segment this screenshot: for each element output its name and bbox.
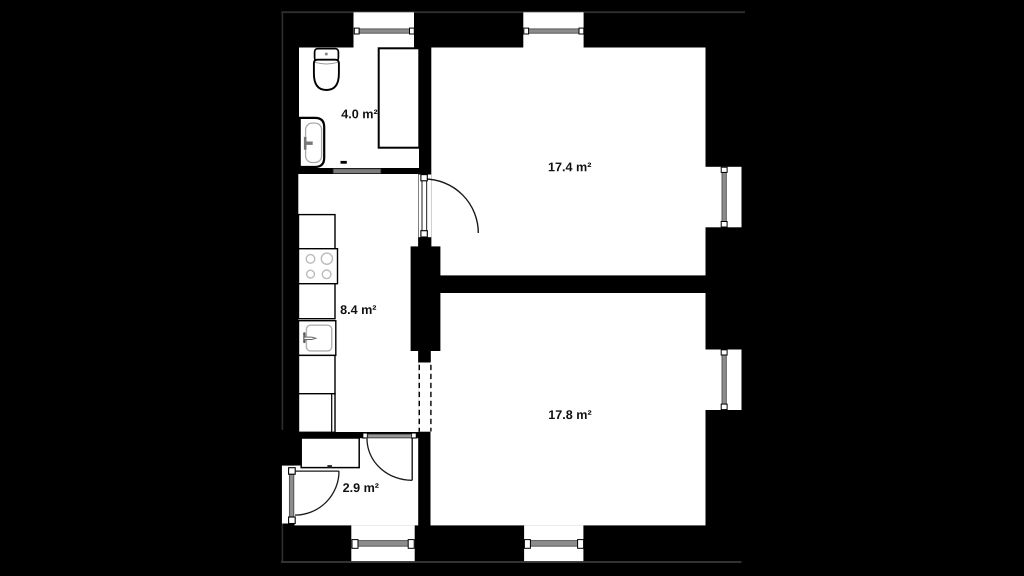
svg-text:4.0 m²: 4.0 m²: [341, 107, 377, 121]
svg-text:8.4 m²: 8.4 m²: [340, 303, 376, 317]
svg-text:17.4 m²: 17.4 m²: [548, 160, 591, 174]
svg-text:17.8 m²: 17.8 m²: [548, 408, 591, 422]
svg-text:2.9 m²: 2.9 m²: [343, 481, 379, 495]
